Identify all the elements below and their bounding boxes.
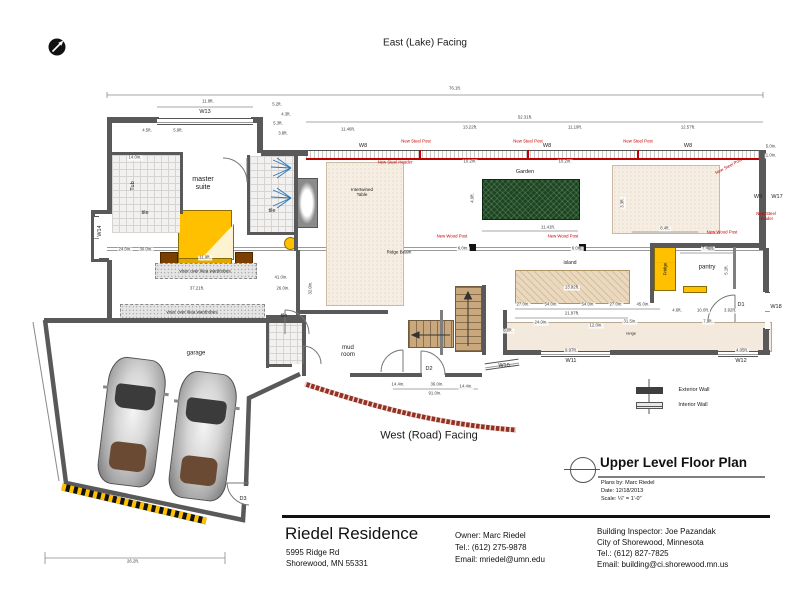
room-label: tile xyxy=(268,208,275,214)
structural-note: New Steel Post xyxy=(401,140,430,145)
dimension-label: 14.4in. xyxy=(391,383,406,388)
exterior-wall-swatch xyxy=(636,387,663,394)
plan-date: Date: 12/18/2013 xyxy=(601,488,643,494)
dimension-label: 54.0in. xyxy=(581,303,596,308)
structural-note: New Steel Post xyxy=(513,140,542,145)
title-rule xyxy=(282,515,770,518)
structural-note: New Steel Header xyxy=(378,161,413,166)
inspector-phone: Tel.: (612) 827-7825 xyxy=(597,549,669,558)
dimension-label: 5.1ft. xyxy=(725,264,730,276)
plan-title-underline xyxy=(598,476,765,478)
interior-wall-label: Interior Wall xyxy=(678,402,707,408)
plan-scale: Scale: ¼" = 1'-0" xyxy=(601,496,642,502)
dimension-label: 13.92ft. xyxy=(564,286,580,291)
floor-plan-sheet: East (Lake) Facing West (Road) Facing xyxy=(0,0,800,600)
dimension-label: 3.92ft. xyxy=(723,309,737,314)
opening-label: W11 xyxy=(566,358,577,364)
room-label: pantry xyxy=(699,265,716,272)
dimension-label: 3.3ft. xyxy=(621,197,626,209)
dimension-label: 6.0in. xyxy=(571,247,584,252)
opening-label: W14 xyxy=(97,225,103,236)
dimension-label: 5.2ft. xyxy=(271,103,283,108)
room-label: visor over ikea wardrobes xyxy=(166,309,217,314)
dimension-label: 12.57ft. xyxy=(680,126,696,131)
plan-title: Upper Level Floor Plan xyxy=(600,455,747,470)
room-label: garage xyxy=(187,351,206,358)
opening-label: W9 xyxy=(754,194,762,200)
dimension-label: 4.05ft. xyxy=(735,349,749,354)
opening-label: D3 xyxy=(239,496,246,502)
opening-label: D1 xyxy=(737,302,744,308)
structural-note: New Steel Post xyxy=(623,140,652,145)
dimension-label: 26.0in. xyxy=(276,287,291,292)
opening-label: W13 xyxy=(199,109,210,115)
plans-by: Plans by: Marc Riedel xyxy=(601,480,655,486)
dimension-label: 5.0in. xyxy=(765,145,778,150)
room-label: Tub xyxy=(130,181,136,190)
dimension-label: 30.0in. xyxy=(139,248,154,253)
room-label: island xyxy=(563,261,576,267)
dimension-label: 4.6ft. xyxy=(671,309,683,314)
dimension-label: 11.41ft. xyxy=(540,226,556,231)
dimension-label: 10.0ft. xyxy=(696,309,710,314)
dimension-label: 6.0in. xyxy=(457,247,470,252)
room-label: Intertwined Table xyxy=(351,187,373,197)
section-marker-line xyxy=(564,469,600,470)
owner-email: Email: mriedel@umn.edu xyxy=(455,555,545,564)
opening-label: W10 xyxy=(498,363,509,369)
address-line2: Shorewood, MN 55331 xyxy=(286,559,368,568)
inspector-name: Building Inspector: Joe Pazandak xyxy=(597,527,716,536)
dimension-label: 24.0in. xyxy=(534,321,549,326)
dimension-label: 10.2in. xyxy=(463,160,478,165)
dimension-label: 9.97ft. xyxy=(564,349,578,354)
dimension-label: 13.22ft. xyxy=(462,126,478,131)
dimension-label: 14.4in. xyxy=(459,385,474,390)
dimension-label: 1.0in. xyxy=(765,154,778,159)
dimension-label: 4.3ft. xyxy=(280,113,292,118)
owner-phone: Tel.: (612) 275-9878 xyxy=(455,543,527,552)
dimension-label: 31.5in. xyxy=(623,320,638,325)
residence-name: Riedel Residence xyxy=(285,524,418,544)
dimension-label: 54.0in. xyxy=(544,303,559,308)
room-label: range xyxy=(626,332,636,337)
dimension-label: 6.0ft. xyxy=(502,329,514,334)
dimension-label: 76.1ft. xyxy=(448,87,462,92)
dimension-label: 11.46ft. xyxy=(340,128,356,133)
structural-note: New Wood Post xyxy=(707,231,738,236)
room-label: tile xyxy=(141,210,148,216)
dimension-label: 45.0in. xyxy=(636,303,651,308)
dimension-label: 24.0in. xyxy=(118,248,133,253)
dimension-label: 7.9ft. xyxy=(702,320,714,325)
dimension-label: 21.97ft. xyxy=(564,312,580,317)
dimension-label: 12.0in. xyxy=(589,324,604,329)
dimension-label: 5.3ft. xyxy=(272,122,284,127)
opening-label: W8 xyxy=(543,143,551,149)
exterior-wall-label: Exterior Wall xyxy=(679,387,710,393)
opening-label: W18 xyxy=(770,304,781,310)
dimension-label: 4.9ft. xyxy=(471,192,476,204)
dimension-label: 41.0in. xyxy=(274,276,289,281)
room-label: Ridge Beam xyxy=(387,249,412,254)
opening-label: W8 xyxy=(684,143,692,149)
address-line1: 5995 Ridge Rd xyxy=(286,548,339,557)
curved-entry-wall xyxy=(305,384,516,430)
dimension-label: 3.8ft. xyxy=(277,132,289,137)
dimension-label: 27.0in. xyxy=(609,303,624,308)
opening-label: W12 xyxy=(735,358,746,364)
room-label: visor over ikea wardrobes xyxy=(179,268,230,273)
dimension-label: 11.8ft. xyxy=(201,100,215,105)
room-label: Fridge xyxy=(662,263,667,276)
inspector-city: City of Shorewood, Minnesota xyxy=(597,538,704,547)
opening-label: W8 xyxy=(359,143,367,149)
room-label: Garden xyxy=(516,169,534,175)
curved-entry-wall-mortar xyxy=(305,384,516,430)
dimension-label: 26.2ft. xyxy=(126,560,140,565)
interior-wall-swatch xyxy=(636,402,663,409)
room-label: mud room xyxy=(341,345,355,359)
dimension-label: 14.0in. xyxy=(128,156,143,161)
dimension-label: 37.21ft. xyxy=(189,287,205,292)
dimension-label: 10.2in. xyxy=(558,160,573,165)
dimension-label: 52.31ft. xyxy=(517,116,533,121)
structural-note: New Wood Post xyxy=(548,235,579,240)
dimension-label: 5.9ft. xyxy=(172,129,184,134)
owner-name: Owner: Marc Riedel xyxy=(455,531,526,540)
dimension-label: 32.0in. xyxy=(309,281,314,296)
dimension-label: 91.0in. xyxy=(428,392,443,397)
opening-label: W17 xyxy=(771,194,782,200)
dimension-label: 11.9ft. xyxy=(198,256,212,261)
dimension-label: 8.4ft. xyxy=(659,227,671,232)
dimension-label: 11.19ft. xyxy=(567,126,583,131)
dimension-label: 7.46ft. xyxy=(701,247,715,252)
opening-label: D2 xyxy=(425,366,432,372)
dimension-label: 4.5ft. xyxy=(141,129,153,134)
dimension-label: 36.0in. xyxy=(430,383,445,388)
dimension-label: 27.0in. xyxy=(516,303,531,308)
room-label: master suite xyxy=(192,176,213,192)
section-marker-icon xyxy=(570,457,596,483)
room-label: tile xyxy=(281,314,287,320)
structural-note: New Steel Header xyxy=(749,212,783,222)
structural-note: New Wood Post xyxy=(437,235,468,240)
inspector-email: Email: building@ci.shorewood.mn.us xyxy=(597,560,728,569)
